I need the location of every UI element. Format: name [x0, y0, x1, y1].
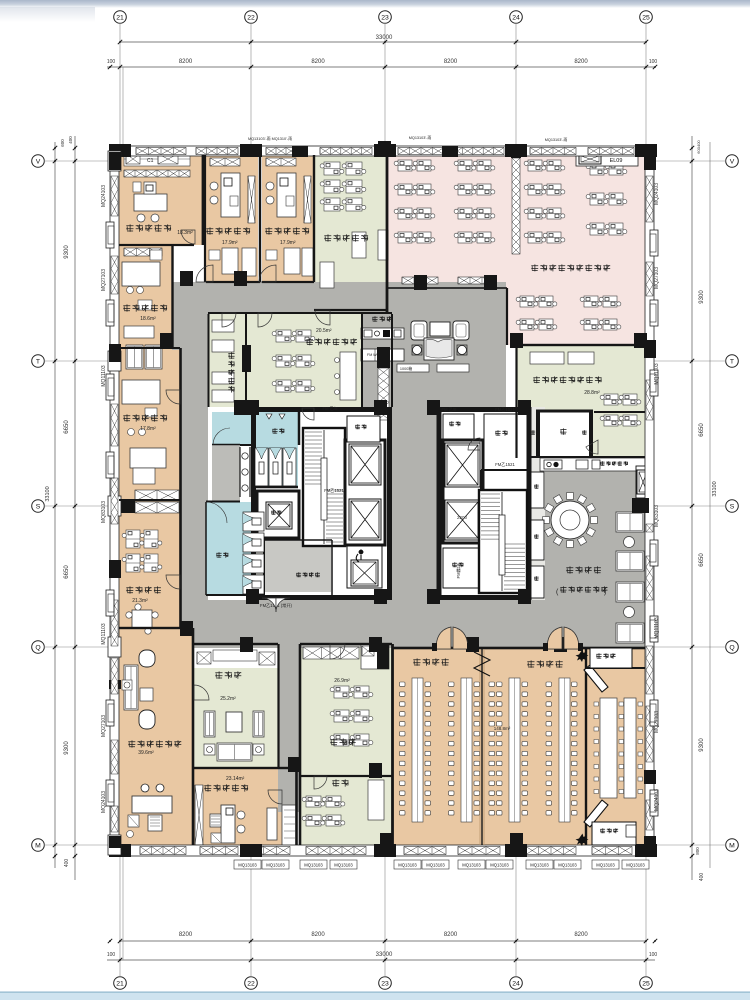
- svg-text:Q: Q: [35, 644, 40, 651]
- svg-text:MQ63103: MQ63103: [654, 505, 660, 527]
- svg-text:MQ24103: MQ24103: [654, 789, 660, 811]
- svg-text:148.8m²: 148.8m²: [494, 726, 511, 731]
- svg-text:1000箱: 1000箱: [400, 366, 412, 371]
- svg-text:MQ13103: MQ13103: [530, 863, 549, 868]
- svg-text:MQ13103’-雨: MQ13103’-雨: [545, 137, 568, 142]
- svg-text:400: 400: [68, 136, 73, 144]
- svg-text:9300: 9300: [699, 738, 705, 752]
- svg-text:24: 24: [512, 14, 520, 21]
- svg-text:17.8m²: 17.8m²: [140, 426, 156, 432]
- svg-text:MQ27103: MQ27103: [654, 711, 660, 733]
- svg-text:20.5m²: 20.5m²: [316, 328, 332, 334]
- svg-text:17.9m²: 17.9m²: [222, 240, 238, 246]
- svg-text:MQ13103: MQ13103: [266, 863, 285, 868]
- svg-text:MQ13103: MQ13103: [596, 863, 615, 868]
- svg-text:6650: 6650: [64, 565, 70, 579]
- svg-text:MQ13103’-雨 MQ1310’-雨: MQ13103’-雨 MQ1310’-雨: [248, 136, 292, 141]
- svg-text:C1: C1: [147, 158, 154, 164]
- svg-text:9300: 9300: [64, 741, 70, 755]
- svg-text:33100: 33100: [45, 486, 51, 501]
- svg-text:100: 100: [649, 952, 658, 958]
- svg-text:MQ13103: MQ13103: [238, 863, 257, 868]
- svg-text:8200: 8200: [179, 932, 193, 938]
- svg-text:MQ13103’-雨: MQ13103’-雨: [409, 135, 432, 140]
- svg-text:MQ13103: MQ13103: [304, 863, 323, 868]
- svg-text:MQ24103: MQ24103: [101, 791, 107, 813]
- svg-text:MQ13103: MQ13103: [426, 863, 445, 868]
- svg-text:8200: 8200: [311, 932, 325, 938]
- svg-text:T: T: [36, 358, 40, 365]
- svg-text:25: 25: [642, 14, 650, 21]
- svg-text:MQ13103: MQ13103: [626, 863, 645, 868]
- svg-text:100: 100: [107, 59, 116, 65]
- svg-text:FM 乙/8: FM 乙/8: [323, 405, 339, 411]
- svg-text:800: 800: [695, 847, 700, 855]
- svg-text:M: M: [35, 842, 41, 849]
- svg-text:V: V: [730, 158, 735, 165]
- svg-text:MQ11103: MQ11103: [654, 617, 660, 638]
- svg-text:33000: 33000: [376, 35, 393, 41]
- svg-text:400: 400: [64, 859, 70, 868]
- svg-text:28.8m²: 28.8m²: [584, 390, 600, 396]
- svg-text:400: 400: [699, 873, 705, 882]
- svg-text:S: S: [36, 503, 41, 510]
- svg-text:T: T: [730, 358, 734, 365]
- svg-text:8200: 8200: [574, 932, 588, 938]
- svg-text:6650: 6650: [64, 420, 70, 434]
- svg-text:MQ13103: MQ13103: [334, 863, 353, 868]
- svg-text:100: 100: [649, 59, 658, 65]
- svg-text:Q: Q: [729, 644, 734, 651]
- svg-text:25: 25: [642, 980, 650, 987]
- svg-text:26.9m²: 26.9m²: [334, 678, 350, 684]
- svg-text:33000: 33000: [376, 952, 393, 958]
- svg-text:25.2m²: 25.2m²: [220, 696, 236, 702]
- svg-text:MQ24103: MQ24103: [654, 183, 660, 205]
- svg-text:MQ27103: MQ27103: [654, 267, 660, 289]
- svg-text:24: 24: [512, 980, 520, 987]
- svg-text:18.3m²: 18.3m²: [177, 230, 193, 236]
- svg-text:9300: 9300: [64, 245, 70, 259]
- svg-text:33100: 33100: [712, 481, 718, 496]
- svg-text:39.6m²: 39.6m²: [138, 750, 154, 756]
- svg-text:MQ11103: MQ11103: [654, 363, 660, 384]
- svg-text:21: 21: [116, 980, 124, 987]
- svg-text:23: 23: [381, 14, 389, 21]
- svg-text:22: 22: [247, 980, 255, 987]
- svg-text:MQ83103: MQ83103: [101, 501, 107, 523]
- svg-text:FM䥡18: FM䥡18: [455, 563, 462, 579]
- svg-text:MQ11103: MQ11103: [101, 623, 107, 644]
- svg-text:MQ13103: MQ13103: [558, 863, 577, 868]
- svg-text:MQ11103: MQ11103: [101, 365, 107, 386]
- svg-text:S: S: [730, 503, 735, 510]
- svg-text:21: 21: [116, 14, 124, 21]
- svg-text:EL09: EL09: [610, 158, 623, 164]
- svg-text:8200: 8200: [179, 59, 193, 65]
- svg-text:8200: 8200: [311, 59, 325, 65]
- svg-text:FM乙1521: FM乙1521: [495, 406, 515, 412]
- svg-text:8200: 8200: [574, 59, 588, 65]
- svg-text:FM乙1521: FM乙1521: [495, 461, 515, 467]
- svg-text:6650: 6650: [699, 553, 705, 567]
- svg-text:600: 600: [60, 139, 65, 147]
- svg-text:2200: 2200: [457, 515, 468, 520]
- svg-text:23.14m²: 23.14m²: [226, 776, 245, 782]
- svg-text:MQ27103: MQ27103: [101, 715, 107, 737]
- svg-text:6650: 6650: [699, 423, 705, 437]
- svg-text:FM乙1521: FM乙1521: [324, 487, 344, 493]
- svg-text:8200: 8200: [444, 932, 458, 938]
- svg-text:MQ24103: MQ24103: [101, 185, 107, 207]
- svg-text:MQ27103: MQ27103: [101, 269, 107, 291]
- svg-text:23: 23: [381, 980, 389, 987]
- svg-text:FM 乙/8: FM 乙/8: [442, 406, 458, 412]
- svg-text:8200: 8200: [444, 59, 458, 65]
- svg-text:V: V: [36, 158, 41, 165]
- svg-text:22: 22: [247, 14, 255, 21]
- svg-text:): ): [604, 589, 606, 596]
- svg-text:MQ13103: MQ13103: [490, 863, 509, 868]
- svg-text:100: 100: [107, 952, 116, 958]
- svg-text:21.3m²: 21.3m²: [132, 598, 148, 604]
- svg-text:M: M: [729, 842, 735, 849]
- svg-text:MQ13103: MQ13103: [398, 863, 417, 868]
- svg-text:18.6m²: 18.6m²: [140, 316, 156, 322]
- svg-text:MQ13103: MQ13103: [462, 863, 481, 868]
- svg-text:9300: 9300: [699, 290, 705, 304]
- svg-text:600400: 600400: [696, 140, 701, 154]
- svg-text:17.9m²: 17.9m²: [280, 240, 296, 246]
